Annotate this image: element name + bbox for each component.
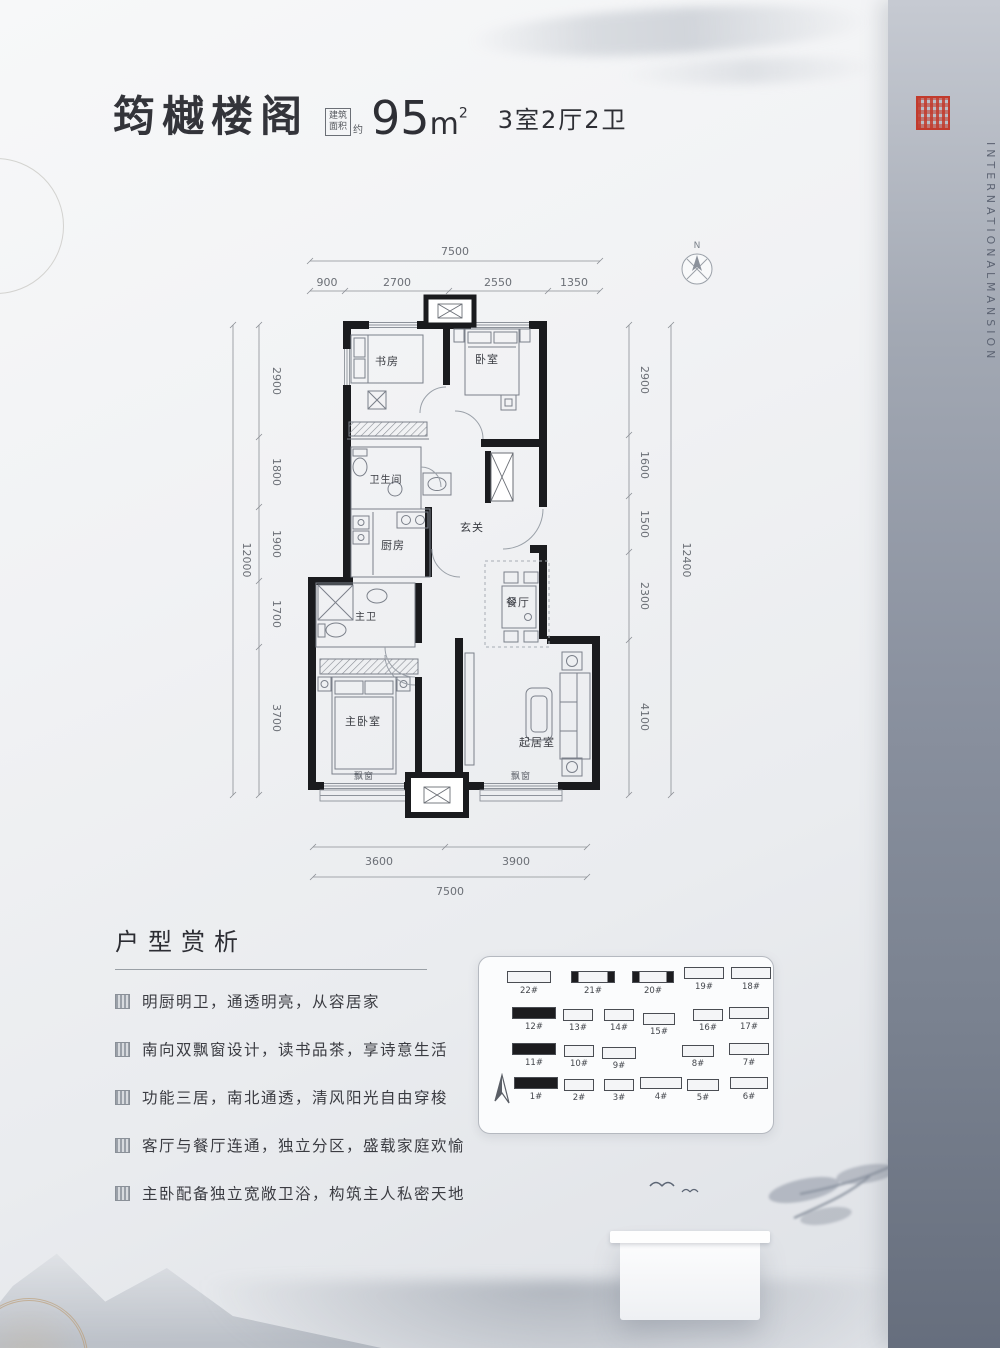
building-footprint <box>512 1007 556 1019</box>
analysis-item: 明厨明卫，通透明亮，从容居家 <box>115 990 485 1012</box>
building-label: 16# <box>699 1023 717 1033</box>
building-label: 18# <box>742 982 760 992</box>
room-label-bay-window: 飘窗 <box>354 770 374 782</box>
building-footprint <box>604 1079 634 1091</box>
room-label-living: 起居室 <box>519 735 555 749</box>
building-footprint <box>640 1077 682 1089</box>
analysis-item: 主卧配备独立宽敞卫浴，构筑主人私密天地 <box>115 1182 485 1204</box>
building-footprint <box>731 967 771 979</box>
divider <box>115 969 427 970</box>
bullet-square-icon <box>115 994 130 1009</box>
bullet-square-icon <box>115 1042 130 1057</box>
bullet-square-icon <box>115 1090 130 1105</box>
room-label-dining: 餐厅 <box>506 595 530 609</box>
compass-icon: N <box>682 241 712 284</box>
building-footprint <box>632 971 674 983</box>
dim-left-seg: 2900 <box>270 367 283 395</box>
building-label: 9# <box>613 1061 626 1071</box>
page-title: 筠樾楼阁 <box>113 96 309 138</box>
building-footprint <box>563 1009 593 1021</box>
building-footprint <box>564 1045 594 1057</box>
ink-brush-stroke <box>620 53 881 88</box>
furniture <box>316 329 590 776</box>
bullet-square-icon <box>115 1186 130 1201</box>
bullet-square-icon <box>115 1138 130 1153</box>
analysis-title: 户型赏析 <box>115 922 485 957</box>
north-arrow-icon <box>489 1073 515 1107</box>
analysis-text: 功能三居，南北通透，清风阳光自由穿梭 <box>142 1086 448 1108</box>
building-label: 13# <box>569 1023 587 1033</box>
building-label: 22# <box>520 986 538 996</box>
area-approx: 约 <box>353 121 363 136</box>
room-label-master-bedroom: 主卧室 <box>345 714 381 728</box>
dim-bottom-seg: 3900 <box>502 855 530 868</box>
room-label-master-bath: 主卫 <box>355 611 377 623</box>
building-footprint <box>514 1077 558 1089</box>
building-label: 11# <box>525 1058 543 1068</box>
building-label: 7# <box>743 1058 756 1068</box>
site-plan: 22# 21# 20# 19# 18# 12# 13# 14# 15# 16# … <box>478 956 774 1134</box>
dim-left-seg: 1700 <box>270 600 283 628</box>
building-label: 20# <box>644 986 662 996</box>
dim-left-seg: 1900 <box>270 530 283 558</box>
brand-seal-icon <box>916 96 950 130</box>
building-label: 1# <box>530 1092 543 1102</box>
building-footprint <box>571 971 615 983</box>
analysis-item: 功能三居，南北通透，清风阳光自由穿梭 <box>115 1086 485 1108</box>
dim-bottom-seg: 3600 <box>365 855 393 868</box>
analysis-text: 客厅与餐厅连通，独立分区，盛载家庭欢愉 <box>142 1134 465 1156</box>
building-label: 2# <box>573 1093 586 1103</box>
building-footprint <box>693 1009 723 1021</box>
decor-circle <box>0 158 64 294</box>
dim-left-seg: 1800 <box>270 458 283 486</box>
floorplan-drawing: 7500 900 2700 2550 1350 3600 3900 7500 1… <box>225 225 735 915</box>
building-footprint <box>602 1047 636 1059</box>
dim-top-seg: 1350 <box>560 276 588 289</box>
building-footprint <box>730 1077 768 1089</box>
building-label: 10# <box>570 1059 588 1069</box>
dim-right-seg: 4100 <box>638 703 651 731</box>
dim-top-seg: 2550 <box>484 276 512 289</box>
area-label-box: 建筑 面积 <box>325 108 351 137</box>
room-label-bedroom: 卧室 <box>475 352 499 366</box>
analysis-section: 户型赏析 明厨明卫，通透明亮，从容居家 南向双飘窗设计，读书品茶，享诗意生活 功… <box>115 922 485 1230</box>
building-label: 19# <box>695 982 713 992</box>
building-label: 15# <box>650 1027 668 1037</box>
analysis-item: 客厅与餐厅连通，独立分区，盛载家庭欢愉 <box>115 1134 485 1156</box>
brand-line-1: INTERNATIONAL <box>888 142 1000 282</box>
dim-bottom-total: 7500 <box>436 885 464 898</box>
building-label: 21# <box>584 986 602 996</box>
area-value: 95m2 <box>371 99 468 138</box>
birds-icon <box>648 1176 708 1200</box>
building-label: 8# <box>692 1059 705 1069</box>
analysis-text: 南向双飘窗设计，读书品茶，享诗意生活 <box>142 1038 448 1060</box>
ink-brush-stroke <box>469 0 871 64</box>
building-footprint <box>684 967 724 979</box>
building-footprint <box>512 1043 556 1055</box>
analysis-list: 明厨明卫，通透明亮，从容居家 南向双飘窗设计，读书品茶，享诗意生活 功能三居，南… <box>115 990 485 1204</box>
building-label: 5# <box>697 1093 710 1103</box>
building-footprint <box>729 1043 769 1055</box>
room-label-bathroom: 卫生间 <box>370 473 403 486</box>
building-label: 17# <box>740 1022 758 1032</box>
brand-line-2: MANSION <box>888 282 1000 362</box>
stone-pedestal <box>620 1240 760 1320</box>
analysis-text: 主卧配备独立宽敞卫浴，构筑主人私密天地 <box>142 1182 465 1204</box>
building-label: 3# <box>613 1093 626 1103</box>
dim-right-seg: 1600 <box>638 451 651 479</box>
header: 筠樾楼阁 建筑 面积 约 95m2 3室2厅2卫 <box>113 96 628 138</box>
flyer-page: 筠樾楼阁 建筑 面积 约 95m2 3室2厅2卫 <box>0 0 1000 1348</box>
brand-name-vertical: INTERNATIONAL MANSION <box>888 142 1000 363</box>
dim-top-seg: 2700 <box>383 276 411 289</box>
area-label-line1: 建筑 <box>329 111 347 122</box>
building-label: 12# <box>525 1022 543 1032</box>
dim-right-seg: 2900 <box>638 366 651 394</box>
dim-top-total: 7500 <box>441 245 469 258</box>
analysis-text: 明厨明卫，通透明亮，从容居家 <box>142 990 380 1012</box>
room-labels: 书房 卧室 卫生间 厨房 玄关 餐厅 主卫 主卧室 起居室 飘窗 飘窗 <box>345 352 555 782</box>
area-label-line2: 面积 <box>329 122 347 133</box>
building-footprint <box>643 1013 675 1025</box>
dim-right-seg: 1500 <box>638 510 651 538</box>
compass-label: N <box>694 241 701 251</box>
room-label-kitchen: 厨房 <box>381 539 405 552</box>
brand-strip: INTERNATIONAL MANSION <box>888 0 1000 1348</box>
building-footprint <box>564 1079 594 1091</box>
room-label-foyer: 玄关 <box>460 520 484 534</box>
building-label: 4# <box>655 1092 668 1102</box>
dim-top-seg: 900 <box>317 276 338 289</box>
building-label: 14# <box>610 1023 628 1033</box>
building-footprint <box>604 1009 634 1021</box>
dim-left-seg: 3700 <box>270 704 283 732</box>
building-footprint <box>682 1045 714 1057</box>
dim-right-seg: 2300 <box>638 582 651 610</box>
building-label: 6# <box>743 1092 756 1102</box>
building-footprint <box>729 1007 769 1019</box>
building-footprint <box>687 1079 719 1091</box>
layout-summary: 3室2厅2卫 <box>498 100 628 135</box>
dim-right-total: 12400 <box>680 543 693 578</box>
building-footprint <box>507 971 551 983</box>
room-label-bay-window: 飘窗 <box>511 770 531 782</box>
room-label-study: 书房 <box>375 355 399 368</box>
dim-left-total: 12000 <box>240 543 253 578</box>
analysis-item: 南向双飘窗设计，读书品茶，享诗意生活 <box>115 1038 485 1060</box>
mist-hill <box>170 1280 950 1348</box>
